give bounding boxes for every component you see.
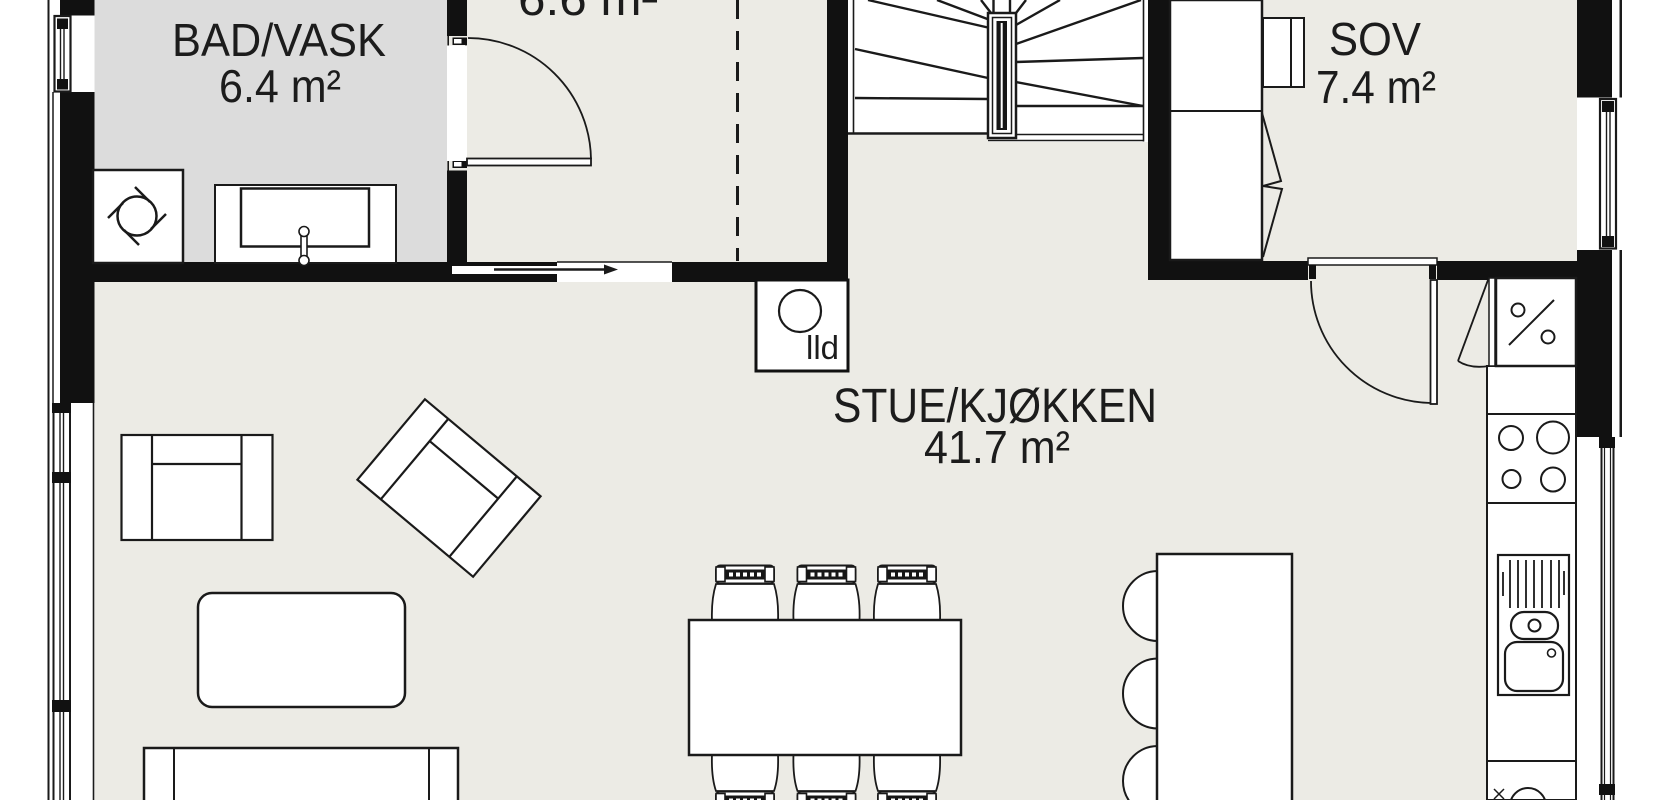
svg-text:41.7 m²: 41.7 m² [924,421,1070,473]
svg-text:BAD/VASK: BAD/VASK [172,14,386,66]
svg-text:6.4 m²: 6.4 m² [219,60,341,112]
svg-text:SOV: SOV [1329,13,1421,65]
svg-text:6.6 m²: 6.6 m² [518,0,658,25]
svg-text:7.4 m²: 7.4 m² [1316,61,1436,113]
svg-text:lld: lld [806,329,839,366]
